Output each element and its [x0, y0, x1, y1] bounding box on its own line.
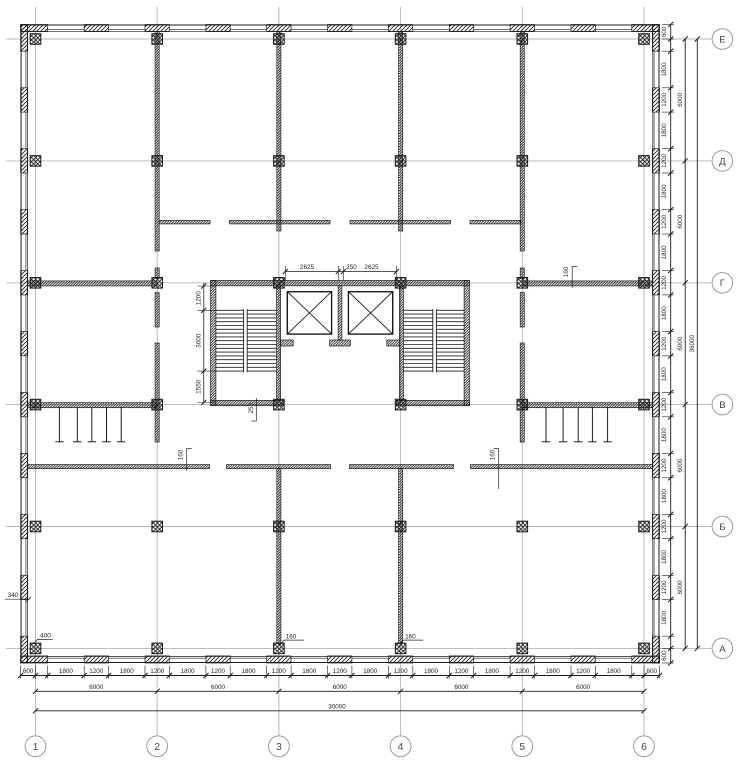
svg-text:36000: 36000 [689, 334, 696, 352]
svg-text:1200: 1200 [333, 668, 348, 675]
svg-text:1200: 1200 [661, 397, 668, 412]
svg-text:1200: 1200 [661, 275, 668, 290]
svg-text:6000: 6000 [333, 684, 348, 691]
svg-text:1200: 1200 [211, 668, 226, 675]
svg-text:6000: 6000 [576, 684, 591, 691]
svg-text:600: 600 [661, 26, 668, 37]
svg-text:1200: 1200 [515, 668, 530, 675]
svg-text:1200: 1200 [454, 668, 469, 675]
svg-text:1800: 1800 [661, 489, 668, 504]
svg-text:160: 160 [286, 633, 297, 640]
svg-text:6000: 6000 [677, 214, 684, 229]
svg-text:1800: 1800 [661, 245, 668, 260]
svg-text:1800: 1800 [363, 668, 378, 675]
svg-text:250: 250 [346, 264, 357, 271]
svg-text:1200: 1200 [661, 153, 668, 168]
svg-text:1200: 1200 [394, 668, 409, 675]
svg-text:1200: 1200 [89, 668, 104, 675]
svg-text:160: 160 [490, 449, 497, 460]
svg-text:5: 5 [519, 741, 525, 753]
svg-text:1800: 1800 [546, 668, 561, 675]
svg-text:2625: 2625 [364, 264, 379, 271]
svg-text:1: 1 [33, 741, 39, 753]
svg-text:1800: 1800 [241, 668, 256, 675]
svg-text:600: 600 [23, 668, 34, 675]
svg-text:1200: 1200 [661, 336, 668, 351]
svg-text:6000: 6000 [677, 458, 684, 473]
svg-text:6000: 6000 [677, 580, 684, 595]
svg-text:В: В [719, 400, 725, 411]
svg-text:1200: 1200 [272, 668, 287, 675]
svg-text:1200: 1200 [661, 580, 668, 595]
svg-text:2625: 2625 [300, 264, 315, 271]
svg-text:600: 600 [647, 668, 658, 675]
svg-text:6000: 6000 [454, 684, 469, 691]
svg-text:160: 160 [178, 449, 185, 460]
svg-text:1200: 1200 [661, 458, 668, 473]
svg-text:1200: 1200 [661, 519, 668, 534]
svg-text:1800: 1800 [661, 123, 668, 138]
svg-text:1200: 1200 [150, 668, 165, 675]
svg-text:1200: 1200 [576, 668, 591, 675]
svg-text:1800: 1800 [661, 428, 668, 443]
svg-text:6000: 6000 [211, 684, 226, 691]
svg-text:1800: 1800 [607, 668, 622, 675]
svg-text:400: 400 [40, 633, 51, 640]
svg-text:Д: Д [719, 156, 726, 167]
svg-text:1200: 1200 [195, 291, 202, 306]
svg-text:1800: 1800 [120, 668, 135, 675]
svg-text:1550: 1550 [195, 379, 202, 394]
svg-text:1800: 1800 [661, 610, 668, 625]
svg-text:А: А [719, 644, 726, 655]
svg-text:250: 250 [248, 402, 255, 413]
svg-text:1200: 1200 [661, 214, 668, 229]
svg-text:Г: Г [720, 278, 726, 289]
svg-text:1800: 1800 [661, 184, 668, 199]
svg-text:340: 340 [8, 592, 19, 599]
svg-text:3000: 3000 [195, 333, 202, 348]
svg-text:1800: 1800 [661, 306, 668, 321]
svg-text:1800: 1800 [424, 668, 439, 675]
svg-text:6000: 6000 [677, 336, 684, 351]
svg-text:6: 6 [641, 741, 647, 753]
svg-text:Е: Е [719, 34, 725, 45]
svg-text:6000: 6000 [677, 92, 684, 107]
svg-text:1800: 1800 [661, 550, 668, 565]
svg-text:1200: 1200 [661, 92, 668, 107]
svg-text:1800: 1800 [302, 668, 317, 675]
svg-text:160: 160 [563, 266, 570, 277]
svg-text:1800: 1800 [661, 62, 668, 77]
svg-text:Б: Б [719, 522, 725, 533]
svg-text:1800: 1800 [485, 668, 500, 675]
svg-text:4: 4 [398, 741, 404, 753]
svg-text:160: 160 [405, 633, 416, 640]
svg-text:3: 3 [276, 741, 282, 753]
svg-text:30000: 30000 [328, 703, 346, 710]
svg-text:600: 600 [661, 650, 668, 661]
svg-text:6000: 6000 [89, 684, 104, 691]
svg-text:1800: 1800 [181, 668, 196, 675]
svg-text:1800: 1800 [661, 367, 668, 382]
svg-text:2: 2 [154, 741, 160, 753]
svg-text:1800: 1800 [59, 668, 74, 675]
